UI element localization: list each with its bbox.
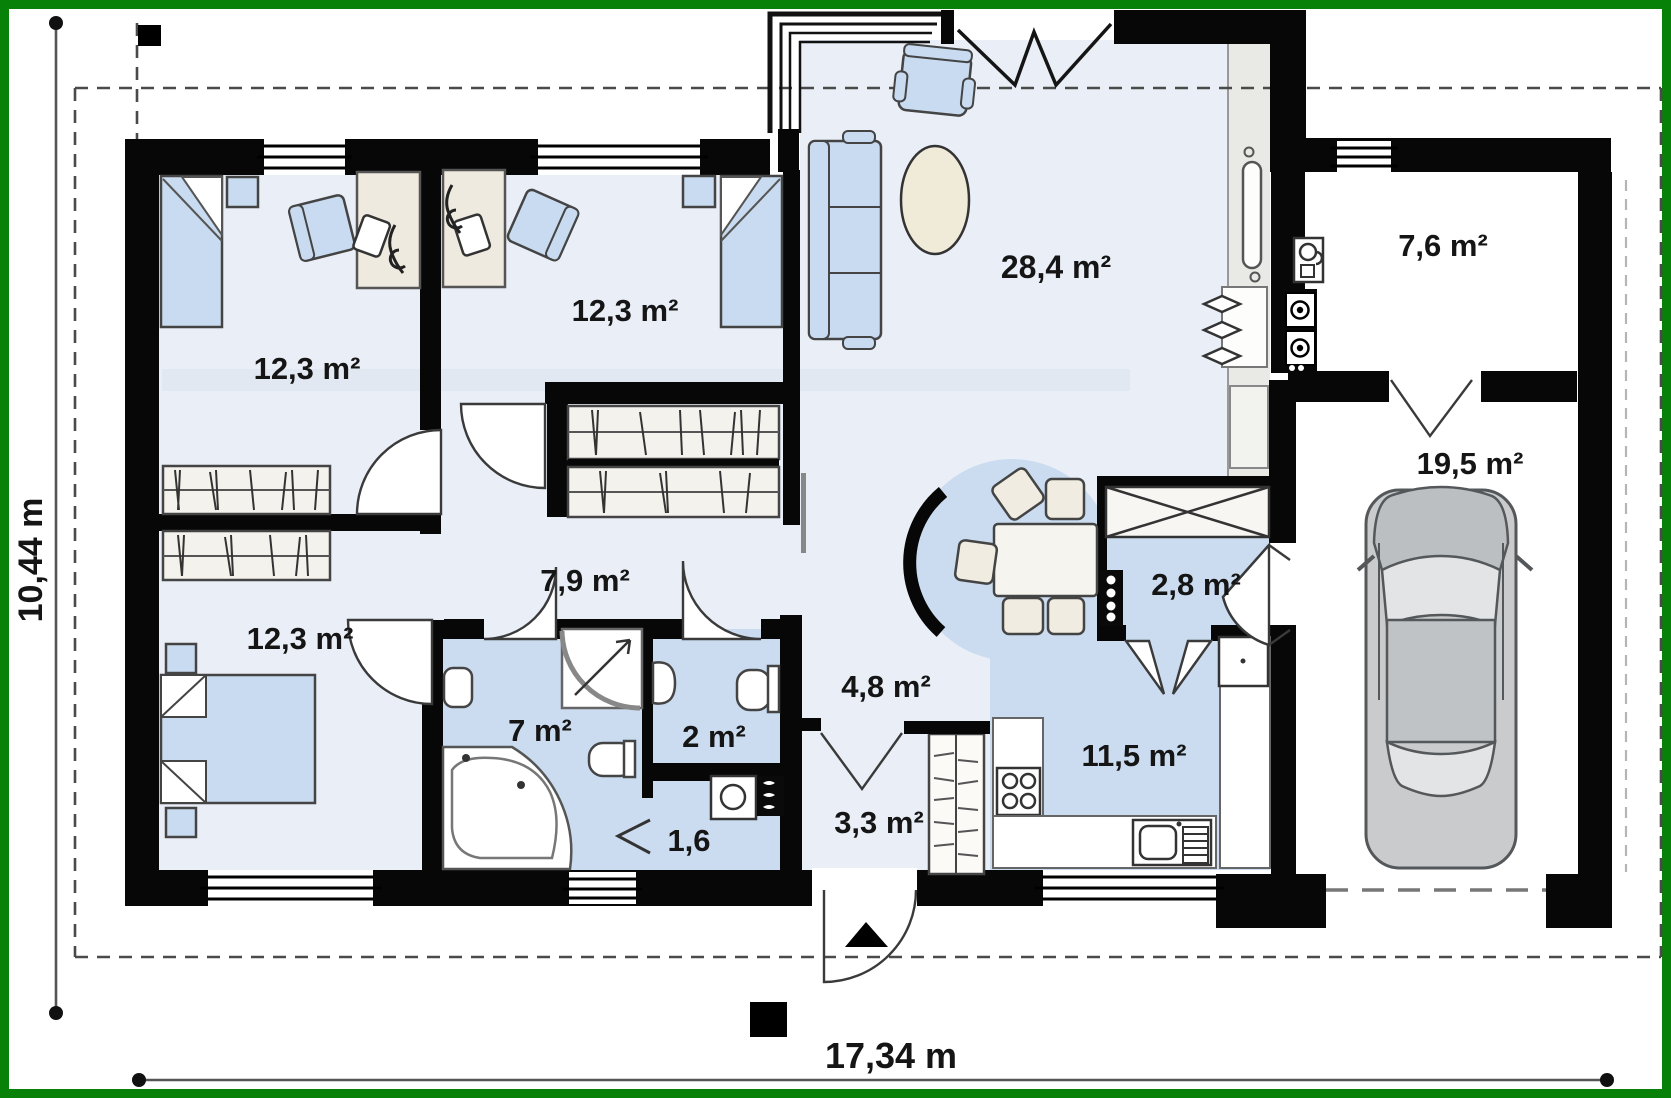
svg-text:4,8 m²: 4,8 m² [841, 669, 931, 704]
svg-text:3,3 m²: 3,3 m² [834, 805, 924, 840]
svg-text:11,5 m²: 11,5 m² [1081, 738, 1186, 773]
svg-text:2 m²: 2 m² [682, 719, 746, 754]
svg-text:10,44 m: 10,44 m [12, 498, 50, 623]
svg-text:12,3 m²: 12,3 m² [572, 293, 679, 328]
svg-text:2,8 m²: 2,8 m² [1151, 567, 1241, 602]
svg-text:7 m²: 7 m² [508, 713, 572, 748]
svg-text:7,9 m²: 7,9 m² [540, 563, 630, 598]
svg-text:1,6: 1,6 [667, 823, 710, 858]
svg-text:12,3 m²: 12,3 m² [254, 351, 361, 386]
svg-text:19,5 m²: 19,5 m² [1417, 446, 1524, 481]
svg-text:7,6 m²: 7,6 m² [1398, 228, 1488, 263]
svg-text:28,4 m²: 28,4 m² [1001, 249, 1111, 285]
svg-text:12,3 m²: 12,3 m² [247, 621, 354, 656]
svg-text:17,34 m: 17,34 m [825, 1035, 957, 1076]
